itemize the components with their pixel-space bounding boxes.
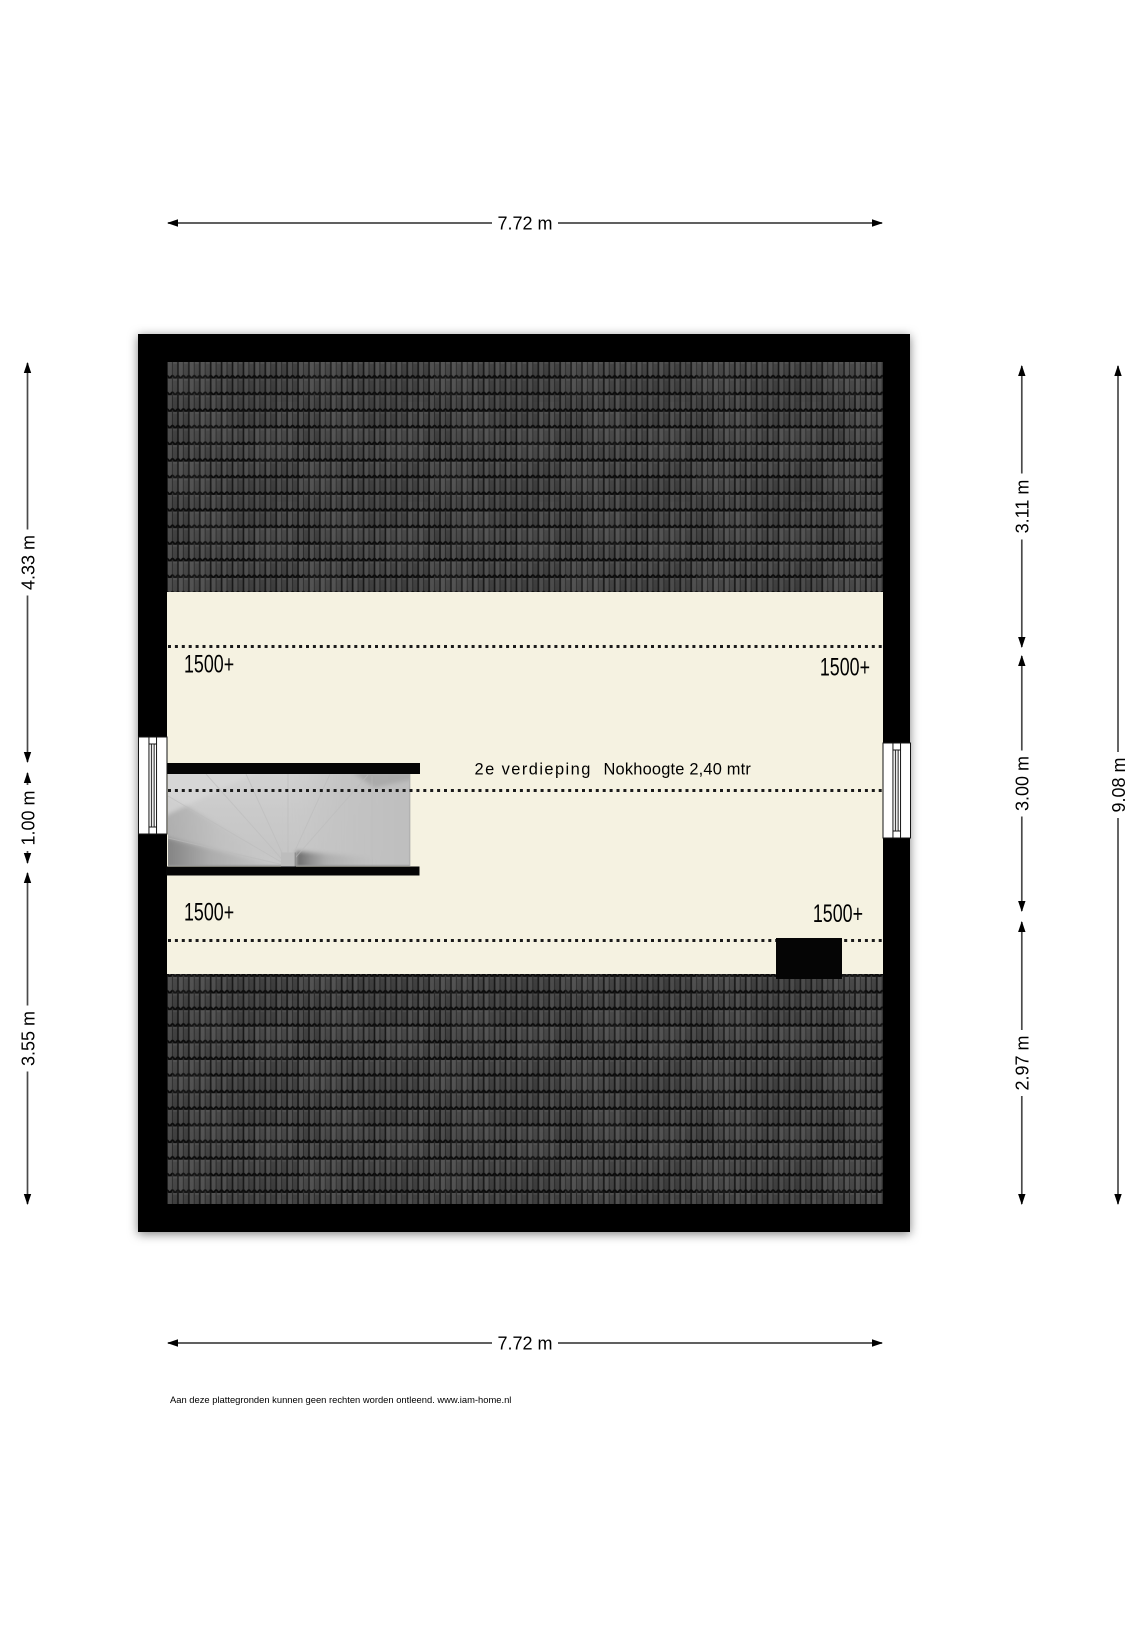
svg-text:9.08 m: 9.08 m (1109, 757, 1129, 812)
svg-text:7.72 m: 7.72 m (497, 1333, 552, 1353)
svg-text:2e verdieping: 2e verdieping (475, 761, 592, 779)
svg-text:3.55 m: 3.55 m (18, 1011, 38, 1066)
svg-text:7.72 m: 7.72 m (497, 213, 552, 233)
svg-text:1.00 m: 1.00 m (18, 790, 38, 845)
svg-text:3.00 m: 3.00 m (1013, 756, 1033, 811)
svg-text:1500+: 1500+ (184, 650, 234, 679)
svg-text:1500+: 1500+ (820, 653, 870, 682)
svg-text:3.11 m: 3.11 m (1013, 480, 1033, 534)
svg-text:Aan deze plattegronden kunnen: Aan deze plattegronden kunnen geen recht… (170, 1394, 511, 1405)
svg-text:2.97 m: 2.97 m (1013, 1035, 1033, 1090)
svg-text:4.33 m: 4.33 m (18, 535, 38, 590)
svg-text:Nokhoogte 2,40 mtr: Nokhoogte 2,40 mtr (604, 761, 752, 779)
svg-text:1500+: 1500+ (813, 899, 863, 928)
svg-text:1500+: 1500+ (184, 898, 234, 927)
